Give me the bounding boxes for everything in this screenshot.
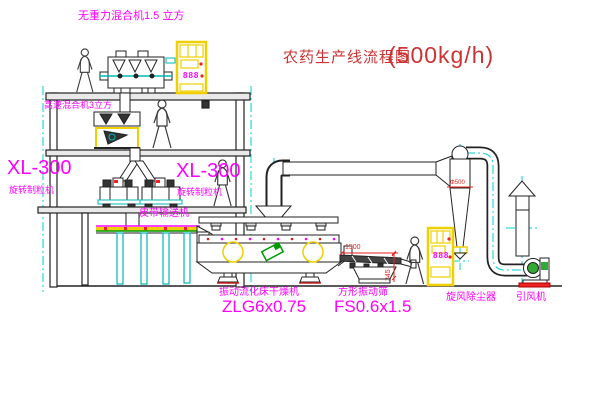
label-granulator-right-model: XL-300 bbox=[176, 161, 241, 181]
cabinet-1-display: 888 bbox=[183, 72, 199, 80]
gravity-mixer-machine bbox=[100, 51, 175, 93]
label-dryer-model: ZLG6x0.75 bbox=[222, 298, 306, 315]
diagram-title-capacity: (500kg/h) bbox=[388, 44, 494, 67]
cad-flow-diagram: 农药生产线流程图 (500kg/h) 无重力混合机1.5 立方 高速混合机3立方… bbox=[0, 0, 600, 403]
label-granulator-left-name: 旋转制粒机 bbox=[9, 186, 54, 195]
dryer-spring-feet bbox=[217, 273, 321, 283]
exhaust-stack bbox=[509, 181, 535, 256]
high-speed-mixer-machine bbox=[94, 112, 140, 148]
dimension-cyclone: Φ500 bbox=[450, 180, 465, 186]
granulator-machine-right bbox=[140, 178, 182, 207]
label-screen-model: FS0.6x1.5 bbox=[334, 298, 412, 315]
vibrating-screen-machine bbox=[340, 246, 416, 283]
person-figure-icon bbox=[77, 49, 93, 92]
label-gravity-mixer: 无重力混合机1.5 立方 bbox=[78, 11, 184, 22]
label-high-speed-mixer: 高速混合机3立方 bbox=[44, 101, 112, 110]
label-granulator-right-name: 旋转制粒机 bbox=[177, 188, 222, 197]
label-belt-conveyor: 皮带输送机 bbox=[139, 209, 189, 219]
belt-conveyor-machine bbox=[96, 213, 212, 284]
cabinet-2-display: 888 bbox=[433, 252, 449, 260]
fluid-bed-dryer-machine bbox=[197, 217, 350, 283]
label-granulator-left-model: XL-300 bbox=[7, 158, 72, 178]
label-cyclone: 旋风除尘器 bbox=[446, 293, 496, 303]
label-draft-fan: 引风机 bbox=[516, 293, 546, 303]
control-cabinet-1 bbox=[177, 42, 206, 93]
dimension-screen-height: 345 bbox=[385, 269, 392, 281]
person-figure-icon bbox=[153, 100, 171, 148]
exhaust-duct bbox=[256, 156, 452, 219]
feed-chute-1 bbox=[120, 93, 130, 112]
dimension-screen-width: 1500 bbox=[345, 244, 361, 251]
granulator-machine-left bbox=[98, 178, 140, 207]
